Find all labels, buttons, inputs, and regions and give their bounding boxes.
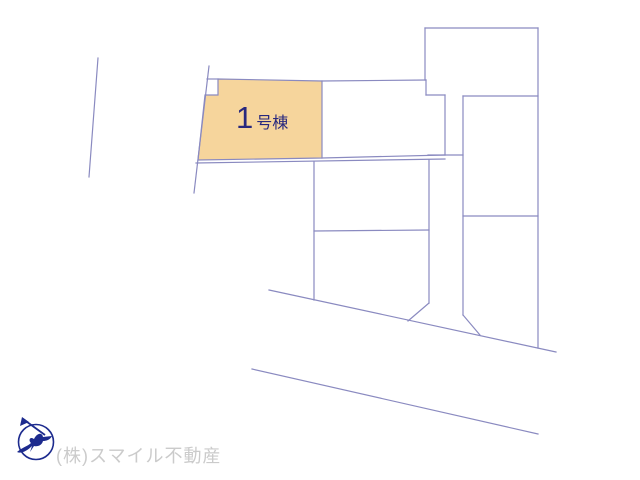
parcel-boundary-line: [252, 369, 538, 434]
parcel-boundary-line: [269, 290, 556, 352]
parcel-number: 1: [236, 101, 253, 135]
plot-map-page: 1 号棟 (株)スマイル不動産: [0, 0, 640, 480]
company-watermark: (株)スマイル不動産: [56, 442, 221, 468]
compass-needle-head: [20, 417, 29, 426]
parcel-boundary-line: [322, 80, 426, 81]
parcel-label: 1 号棟: [236, 101, 288, 135]
compass-north-icon: [13, 415, 59, 462]
parcel-boundary-line: [408, 303, 429, 321]
parcel-boundary-line: [322, 155, 445, 158]
parcel-suffix: 号棟: [256, 115, 288, 133]
parcel-boundary-line: [314, 230, 429, 231]
compass-bird-silhouette: [17, 434, 52, 453]
parcel-boundary-line: [89, 58, 98, 177]
plot-map: [0, 0, 640, 480]
